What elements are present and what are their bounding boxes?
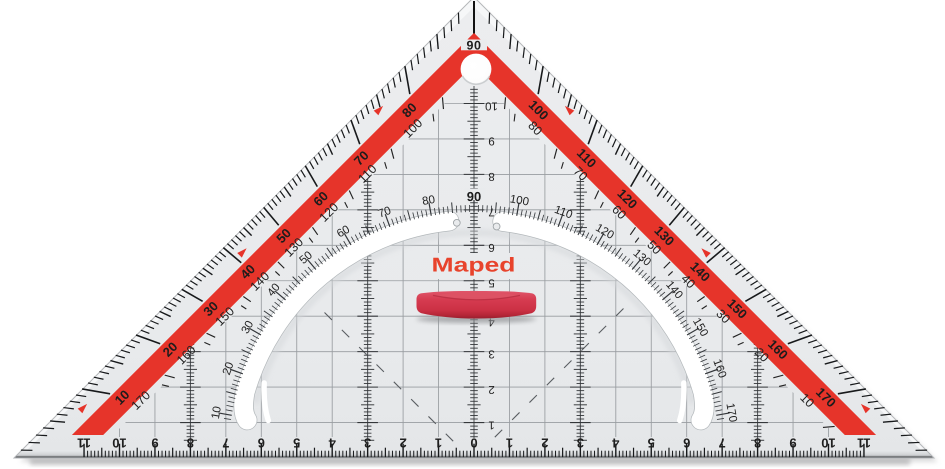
svg-text:10: 10 xyxy=(210,405,224,420)
svg-text:3: 3 xyxy=(364,436,371,451)
svg-text:5: 5 xyxy=(648,436,655,451)
svg-text:90: 90 xyxy=(467,38,482,52)
svg-text:7: 7 xyxy=(222,436,229,451)
svg-text:8: 8 xyxy=(488,170,494,182)
svg-text:3: 3 xyxy=(577,436,584,451)
svg-text:90: 90 xyxy=(467,189,481,204)
svg-text:10: 10 xyxy=(112,436,126,451)
svg-text:2: 2 xyxy=(488,383,494,395)
svg-text:80: 80 xyxy=(421,194,436,208)
svg-text:7: 7 xyxy=(719,436,726,451)
svg-text:9: 9 xyxy=(151,436,158,451)
svg-text:8: 8 xyxy=(187,436,194,451)
svg-text:6: 6 xyxy=(683,436,690,451)
svg-text:4: 4 xyxy=(328,436,336,451)
svg-text:9: 9 xyxy=(789,436,796,451)
svg-text:6: 6 xyxy=(488,241,494,253)
svg-text:11: 11 xyxy=(857,436,871,451)
svg-text:10: 10 xyxy=(821,436,835,451)
svg-text:5: 5 xyxy=(293,436,300,451)
svg-text:1: 1 xyxy=(506,436,513,451)
svg-text:6: 6 xyxy=(258,436,265,451)
svg-text:3: 3 xyxy=(488,347,494,359)
svg-text:4: 4 xyxy=(611,436,619,451)
svg-text:9: 9 xyxy=(488,135,494,147)
svg-text:11: 11 xyxy=(77,436,91,451)
svg-text:Maped: Maped xyxy=(432,255,516,277)
svg-text:8: 8 xyxy=(754,436,761,451)
svg-text:0: 0 xyxy=(470,436,477,451)
svg-text:2: 2 xyxy=(399,436,406,451)
svg-text:1: 1 xyxy=(488,418,494,430)
svg-text:1: 1 xyxy=(435,436,442,451)
svg-text:2: 2 xyxy=(541,436,548,451)
svg-text:10: 10 xyxy=(485,99,498,111)
